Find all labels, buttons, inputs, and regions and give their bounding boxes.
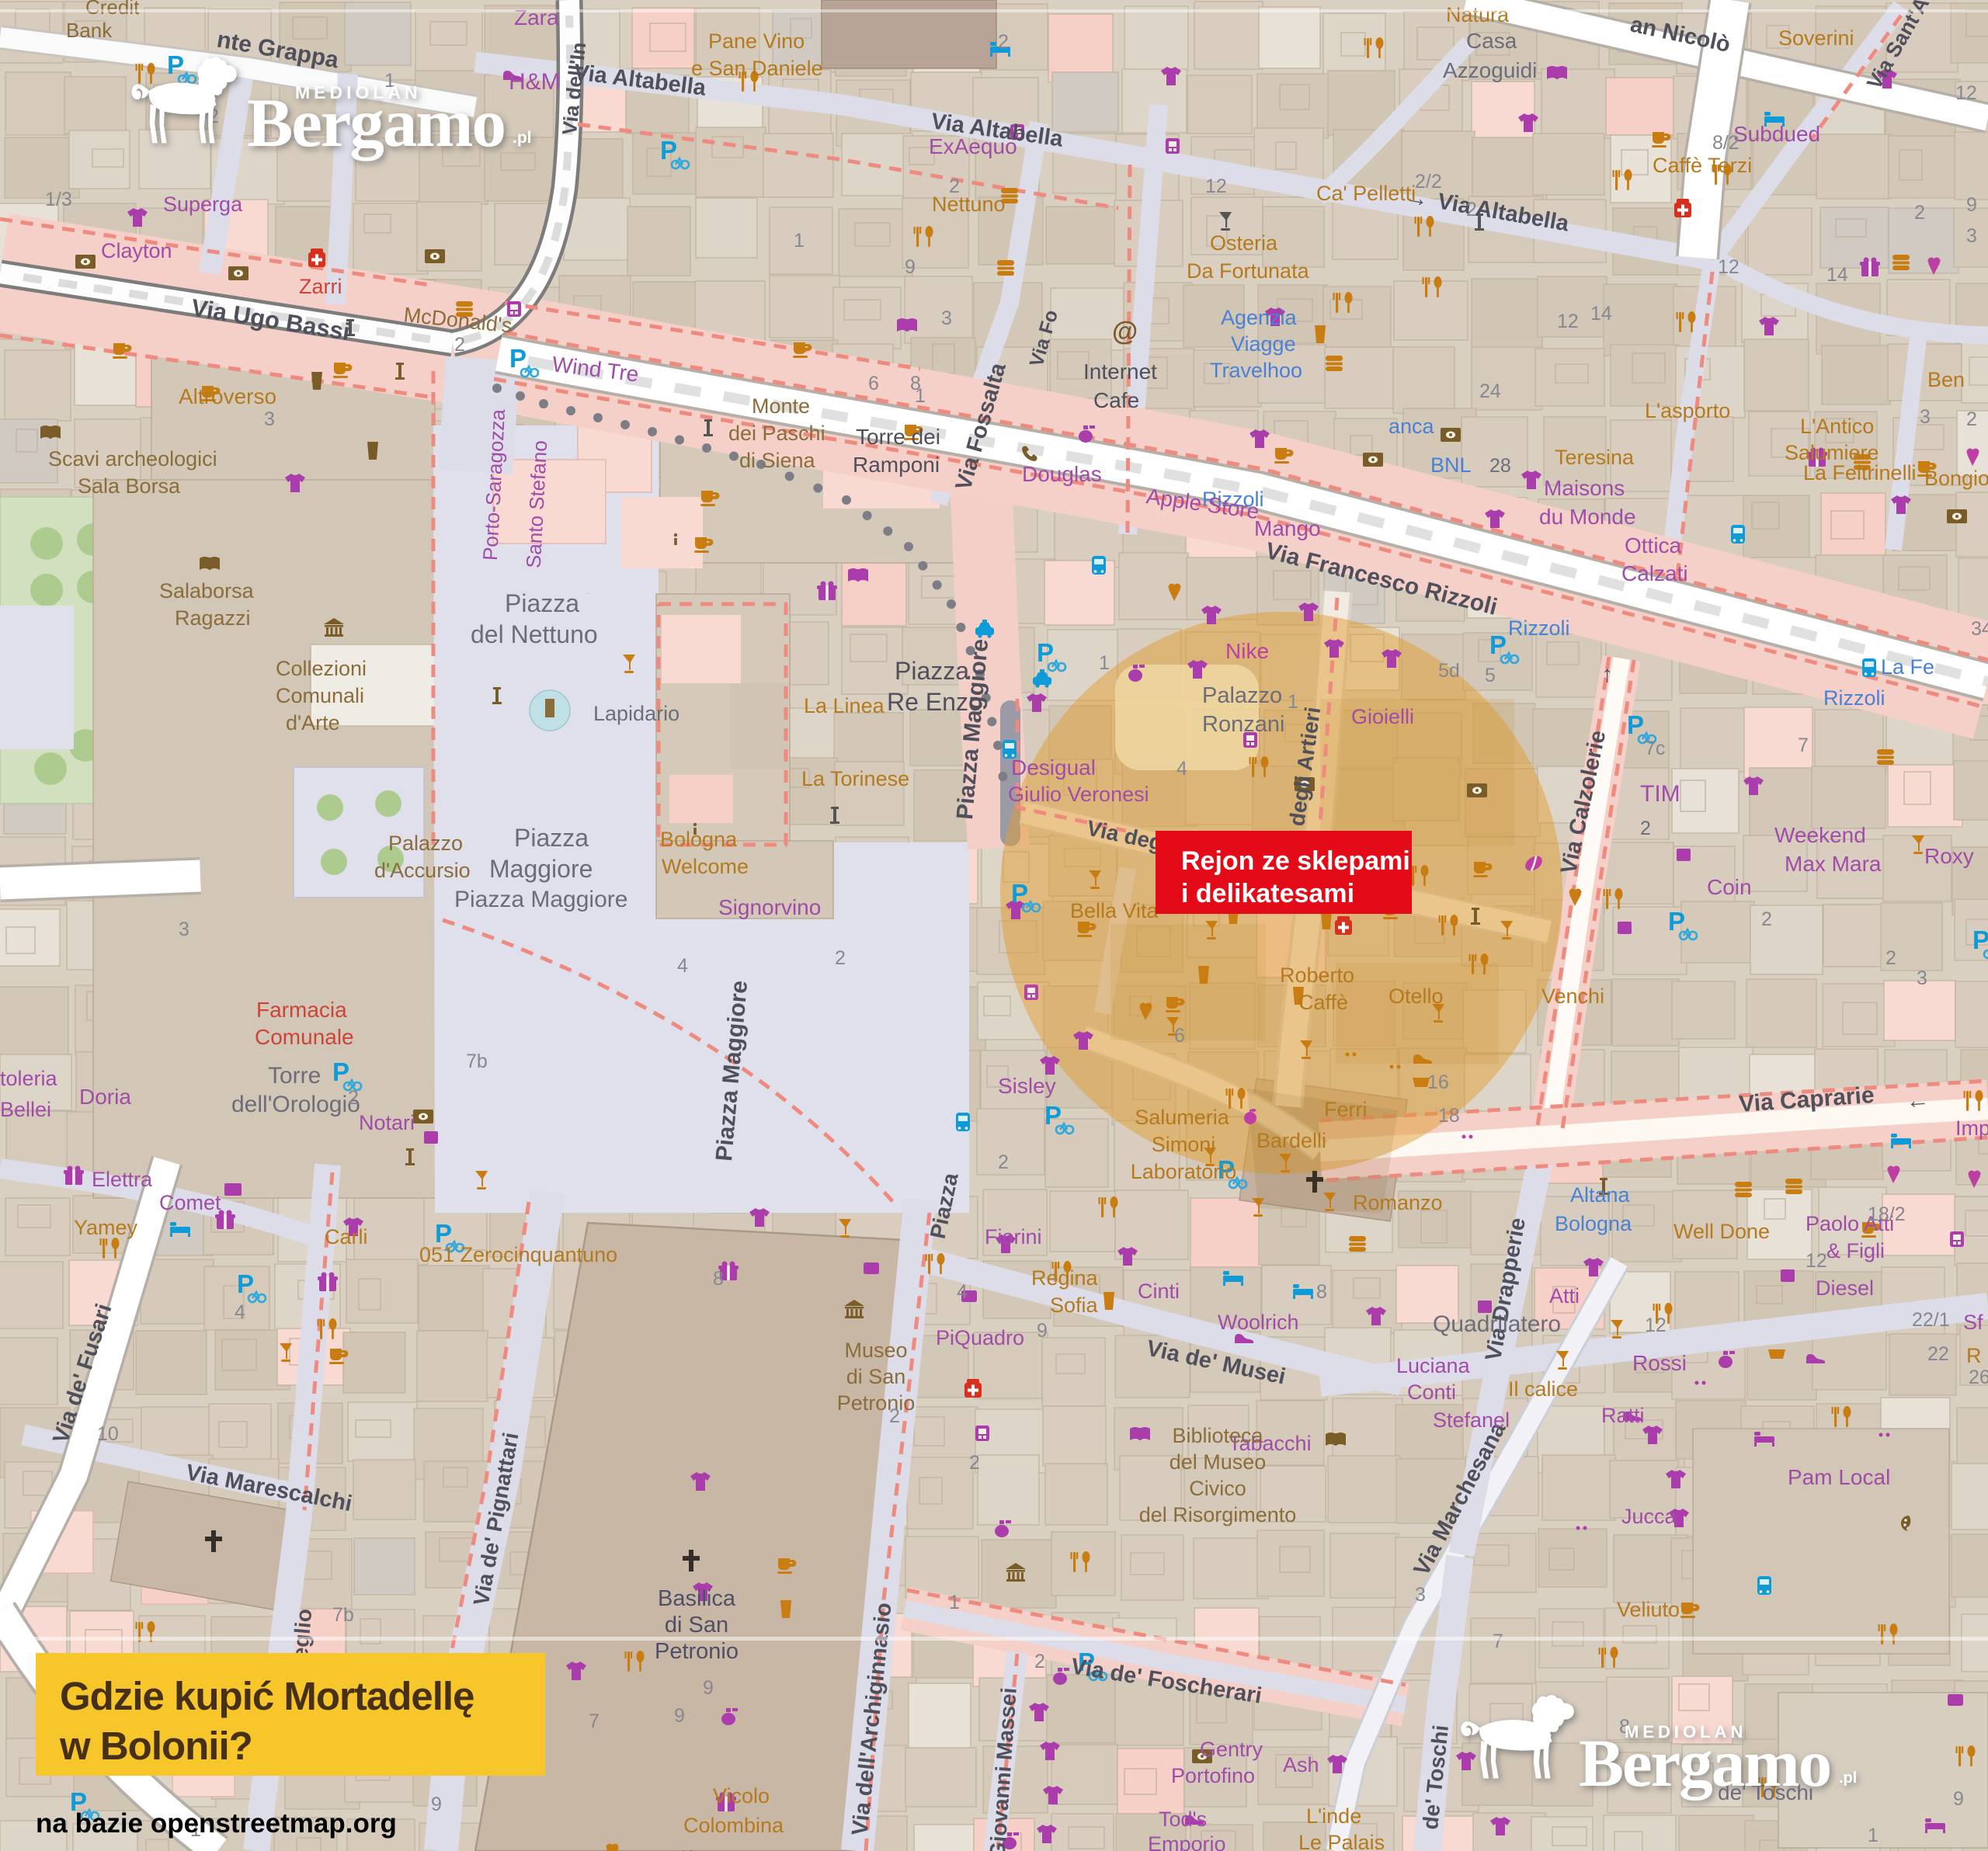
svg-text:10: 10: [97, 1423, 119, 1445]
svg-text:1: 1: [1868, 1825, 1879, 1846]
svg-text:Altana: Altana: [1570, 1183, 1631, 1207]
svg-text:Luciana: Luciana: [1396, 1354, 1471, 1377]
svg-text:3: 3: [179, 919, 189, 940]
svg-text:Cinti: Cinti: [1138, 1280, 1180, 1303]
svg-text:Osteria: Osteria: [1210, 231, 1278, 255]
svg-text:Maggiore: Maggiore: [489, 855, 593, 883]
svg-text:Internet: Internet: [1083, 359, 1157, 384]
svg-text:Mango: Mango: [1254, 516, 1321, 540]
svg-text:Petronio: Petronio: [655, 1639, 739, 1664]
svg-text:Rossi: Rossi: [1632, 1351, 1687, 1375]
svg-text:Palazzo: Palazzo: [1202, 683, 1282, 708]
svg-text:4: 4: [677, 955, 688, 977]
svg-text:26: 26: [1969, 1367, 1988, 1388]
svg-text:Cafe: Cafe: [1093, 388, 1139, 412]
svg-text:Giulio Veronesi: Giulio Veronesi: [1008, 783, 1149, 806]
svg-text:9: 9: [431, 1794, 442, 1815]
svg-text:.pl: .pl: [513, 129, 532, 147]
svg-text:Regina: Regina: [1031, 1266, 1099, 1290]
svg-text:Teresina: Teresina: [1555, 446, 1635, 469]
svg-text:La Linea: La Linea: [804, 694, 885, 717]
svg-text:9: 9: [674, 1705, 685, 1727]
svg-text:2: 2: [454, 334, 465, 356]
svg-text:18: 18: [1438, 1105, 1460, 1127]
svg-text:& Figli: & Figli: [1826, 1239, 1885, 1262]
svg-text:4: 4: [957, 1281, 968, 1303]
svg-text:Le Palais: Le Palais: [1298, 1831, 1385, 1851]
svg-text:Sofia: Sofia: [1050, 1294, 1099, 1317]
svg-text:Gentry: Gentry: [1200, 1738, 1263, 1761]
svg-text:Comunale: Comunale: [255, 1025, 354, 1049]
svg-text:Impero: Impero: [1955, 1117, 1988, 1140]
svg-text:Fiorini: Fiorini: [985, 1225, 1042, 1248]
svg-text:28: 28: [1489, 455, 1511, 477]
svg-text:Viagge: Viagge: [1231, 332, 1296, 356]
svg-text:Clayton: Clayton: [101, 239, 172, 262]
svg-text:Da Fortunata: Da Fortunata: [1187, 259, 1310, 283]
svg-text:Nike: Nike: [1225, 639, 1269, 663]
svg-text:2: 2: [969, 1452, 980, 1474]
svg-text:12: 12: [1955, 82, 1977, 104]
svg-text:BNL: BNL: [1430, 453, 1472, 477]
svg-text:Ratti: Ratti: [1601, 1404, 1645, 1427]
svg-text:w Bolonii?: w Bolonii?: [59, 1724, 252, 1768]
svg-text:L'inde: L'inde: [1306, 1804, 1361, 1828]
svg-text:Comet: Comet: [159, 1191, 221, 1214]
svg-text:Zara: Zara: [514, 5, 559, 30]
svg-text:Agenzia: Agenzia: [1221, 306, 1298, 329]
svg-text:1: 1: [1288, 691, 1298, 713]
svg-text:8: 8: [713, 1268, 724, 1290]
svg-text:1/3: 1/3: [45, 189, 72, 210]
svg-text:Maisons: Maisons: [1544, 476, 1625, 500]
svg-text:.pl: .pl: [1839, 1769, 1857, 1787]
svg-text:Zarri: Zarri: [299, 275, 342, 298]
svg-text:Emporio: Emporio: [1148, 1832, 1226, 1851]
svg-text:Romanzo: Romanzo: [1353, 1191, 1443, 1214]
svg-text:Travelhoo: Travelhoo: [1210, 359, 1302, 382]
svg-text:Roxy: Roxy: [1924, 844, 1974, 868]
svg-text:Elettra: Elettra: [92, 1168, 153, 1191]
svg-text:4: 4: [235, 1301, 245, 1323]
svg-text:Lapidario: Lapidario: [593, 702, 679, 725]
svg-text:Quadrilatero: Quadrilatero: [1433, 1311, 1561, 1337]
svg-text:Max Mara: Max Mara: [1785, 852, 1882, 876]
svg-text:051 Zerocinquantuno: 051 Zerocinquantuno: [419, 1243, 617, 1266]
svg-text:1: 1: [1099, 652, 1110, 674]
svg-text:1: 1: [949, 1592, 960, 1613]
svg-text:2: 2: [998, 31, 1009, 53]
svg-text:Tod's: Tod's: [1159, 1808, 1207, 1831]
svg-text:Stefanel: Stefanel: [1433, 1408, 1510, 1432]
svg-text:Vicolo: Vicolo: [713, 1784, 770, 1808]
svg-text:Altroverso: Altroverso: [179, 384, 276, 408]
svg-text:Rizzoli: Rizzoli: [1508, 616, 1570, 640]
svg-text:Caffè: Caffè: [1298, 991, 1348, 1014]
svg-text:anca: anca: [1388, 415, 1435, 438]
svg-text:9: 9: [703, 1677, 714, 1699]
svg-text:Il calice: Il calice: [1508, 1377, 1578, 1401]
svg-text:2: 2: [1034, 1651, 1045, 1672]
svg-text:Torre: Torre: [268, 1063, 321, 1089]
svg-text:Petronio: Petronio: [837, 1391, 916, 1415]
svg-text:Weekend: Weekend: [1774, 823, 1866, 847]
svg-text:6: 6: [1174, 1025, 1185, 1047]
svg-text:Simoni: Simoni: [1152, 1133, 1216, 1156]
svg-text:3: 3: [1415, 1584, 1426, 1606]
svg-text:La Fe: La Fe: [1881, 655, 1934, 679]
svg-text:H&M: H&M: [509, 69, 561, 95]
svg-text:Notari: Notari: [359, 1111, 415, 1134]
svg-text:8: 8: [910, 373, 921, 394]
svg-text:Signorvino: Signorvino: [718, 895, 821, 919]
svg-text:e San Daniele: e San Daniele: [691, 57, 823, 80]
svg-text:Atti: Atti: [1549, 1284, 1580, 1308]
svg-text:Biblioteca: Biblioteca: [1172, 1424, 1263, 1447]
svg-text:7b: 7b: [332, 1604, 354, 1626]
svg-text:L'asporto: L'asporto: [1645, 399, 1730, 422]
svg-text:Ca' Pelletti: Ca' Pelletti: [1316, 182, 1416, 205]
svg-text:14: 14: [1826, 264, 1848, 286]
svg-text:8: 8: [1316, 1281, 1327, 1303]
svg-text:Pane Vino: Pane Vino: [708, 30, 805, 53]
svg-text:Sf: Sf: [1963, 1311, 1983, 1334]
svg-text:Otello: Otello: [1388, 985, 1444, 1008]
svg-text:Salumeria: Salumeria: [1135, 1106, 1230, 1129]
svg-text:Azzoguidi: Azzoguidi: [1443, 58, 1537, 82]
svg-text:6: 6: [868, 373, 879, 394]
svg-text:2: 2: [949, 175, 960, 197]
svg-text:2: 2: [835, 947, 846, 969]
svg-text:Ragazzi: Ragazzi: [175, 606, 251, 630]
svg-text:R: R: [1966, 1344, 1982, 1367]
svg-text:Welcome: Welcome: [662, 855, 749, 878]
svg-text:Gioielli: Gioielli: [1351, 705, 1414, 728]
svg-text:Lapidario: Lapidario: [586, 593, 590, 595]
svg-text:Sala Borsa: Sala Borsa: [78, 474, 181, 498]
svg-text:Soverini: Soverini: [1778, 26, 1854, 50]
svg-text:di San: di San: [846, 1365, 906, 1388]
svg-text:↑: ↑: [1601, 662, 1613, 687]
svg-text:3: 3: [1920, 406, 1931, 428]
svg-text:PiQuadro: PiQuadro: [936, 1326, 1024, 1349]
svg-text:Bella Vita: Bella Vita: [1070, 899, 1159, 922]
svg-text:Sisley: Sisley: [998, 1074, 1056, 1098]
svg-text:Scavi archeologici: Scavi archeologici: [48, 447, 217, 471]
svg-text:Bardelli: Bardelli: [1256, 1129, 1326, 1152]
svg-text:Basilica: Basilica: [658, 1586, 736, 1611]
svg-text:Bellei: Bellei: [0, 1098, 51, 1121]
svg-text:12: 12: [1557, 311, 1579, 332]
svg-text:P: P: [1972, 925, 1988, 954]
svg-text:2: 2: [998, 1151, 1009, 1173]
svg-text:Superga: Superga: [163, 193, 243, 216]
svg-text:del Museo: del Museo: [1170, 1450, 1267, 1474]
svg-text:Piazza Maggiore: Piazza Maggiore: [454, 887, 627, 912]
svg-text:del Risorgimento: del Risorgimento: [1139, 1503, 1297, 1526]
svg-text:Caffè Terzi: Caffè Terzi: [1653, 154, 1752, 177]
svg-text:3: 3: [1917, 967, 1927, 989]
svg-text:La Torinese: La Torinese: [801, 767, 909, 790]
svg-text:Veliuto: Veliuto: [1617, 1598, 1680, 1621]
svg-text:12: 12: [1718, 256, 1739, 278]
svg-text:Ben: Ben: [1927, 368, 1965, 391]
svg-text:Torre dei: Torre dei: [856, 425, 940, 449]
svg-text:Collezioni: Collezioni: [276, 657, 367, 680]
svg-text:34: 34: [1971, 618, 1988, 640]
svg-text:Colombina: Colombina: [683, 1814, 784, 1837]
svg-text:22: 22: [1927, 1343, 1949, 1365]
svg-text:12: 12: [1645, 1314, 1667, 1336]
svg-text:Rizzoli: Rizzoli: [1823, 686, 1885, 710]
svg-text:Coin: Coin: [1707, 875, 1752, 899]
svg-text:di San: di San: [665, 1613, 728, 1637]
svg-text:i delikatesami: i delikatesami: [1181, 879, 1354, 908]
svg-text:7c: 7c: [1645, 738, 1665, 759]
svg-text:5: 5: [1485, 665, 1496, 686]
svg-text:Civico: Civico: [1189, 1477, 1246, 1500]
svg-text:2: 2: [1640, 818, 1651, 839]
svg-text:Portofino: Portofino: [1171, 1764, 1255, 1787]
svg-text:Piazza: Piazza: [505, 589, 579, 617]
svg-text:Palazzo: Palazzo: [388, 832, 463, 855]
svg-text:Comunali: Comunali: [276, 684, 364, 707]
svg-text:Museo: Museo: [844, 1339, 907, 1362]
svg-text:d'Accursio: d'Accursio: [374, 859, 471, 882]
svg-text:4: 4: [1176, 758, 1187, 780]
svg-text:Calzati: Calzati: [1621, 561, 1688, 585]
svg-text:Gdzie kupić Mortadellę: Gdzie kupić Mortadellę: [60, 1674, 474, 1718]
svg-text:Piazza: Piazza: [514, 824, 589, 852]
svg-text:ExAequo: ExAequo: [929, 134, 1017, 158]
svg-text:Desigual: Desigual: [1011, 755, 1096, 780]
svg-text:Bologna: Bologna: [660, 828, 738, 851]
svg-text:3: 3: [941, 307, 952, 329]
svg-text:Bologna: Bologna: [1555, 1212, 1632, 1235]
svg-text:Farmacia: Farmacia: [256, 998, 347, 1022]
svg-text:12: 12: [1806, 1250, 1827, 1272]
svg-text:24: 24: [1479, 380, 1501, 402]
svg-text:Doria: Doria: [79, 1085, 131, 1109]
svg-text:Diesel: Diesel: [1816, 1276, 1874, 1300]
svg-text:Bongiov: Bongiov: [1924, 467, 1988, 490]
svg-text:Bergamo: Bergamo: [1579, 1725, 1830, 1801]
svg-text:d'Arte: d'Arte: [286, 711, 340, 734]
svg-text:Salaborsa: Salaborsa: [159, 579, 255, 603]
svg-text:L'Antico: L'Antico: [1800, 415, 1874, 438]
svg-text:Piazza: Piazza: [895, 657, 969, 685]
svg-text:toleria: toleria: [0, 1067, 58, 1090]
svg-text:16: 16: [1427, 1071, 1449, 1093]
svg-text:Ash: Ash: [1283, 1753, 1319, 1776]
svg-text:Douglas: Douglas: [1022, 462, 1102, 486]
svg-text:3: 3: [1966, 225, 1977, 247]
svg-text:7: 7: [1493, 1630, 1503, 1652]
svg-text:12: 12: [1205, 175, 1227, 197]
svg-text:del Nettuno: del Nettuno: [471, 620, 598, 648]
svg-text:9: 9: [1953, 1788, 1964, 1810]
svg-text:Well Done: Well Done: [1673, 1220, 1770, 1243]
svg-text:dell'Orologio: dell'Orologio: [231, 1092, 360, 1117]
svg-text:5d: 5d: [1438, 660, 1460, 682]
svg-text:dei Paschi: dei Paschi: [728, 422, 825, 445]
svg-text:Ronzani: Ronzani: [1202, 712, 1284, 737]
svg-text:Ottica: Ottica: [1625, 533, 1682, 557]
svg-text:Natura: Natura: [1446, 3, 1510, 26]
svg-text:Rejon ze sklepami: Rejon ze sklepami: [1181, 846, 1410, 876]
svg-text:8/2: 8/2: [1712, 132, 1739, 154]
svg-text:←: ←: [1905, 1087, 1930, 1114]
svg-text:9: 9: [1037, 1320, 1048, 1342]
svg-text:Subdued: Subdued: [1733, 122, 1820, 146]
svg-text:Ramponi: Ramponi: [853, 453, 940, 477]
svg-text:Bank: Bank: [66, 19, 113, 42]
svg-text:Jucca: Jucca: [1621, 1505, 1677, 1528]
svg-text:9: 9: [905, 256, 916, 278]
svg-text:na bazie openstreetmap.org: na bazie openstreetmap.org: [36, 1808, 397, 1839]
svg-text:Pam Local: Pam Local: [1788, 1465, 1890, 1489]
svg-text:Monte: Monte: [752, 394, 810, 418]
svg-text:Roberto: Roberto: [1280, 964, 1354, 987]
svg-text:TIM: TIM: [1640, 781, 1680, 807]
svg-text:9: 9: [1966, 194, 1977, 216]
svg-text:Casa: Casa: [1466, 29, 1517, 53]
svg-text:Woolrich: Woolrich: [1218, 1311, 1299, 1334]
svg-text:2/2: 2/2: [1415, 171, 1442, 193]
svg-text:Yamey: Yamey: [74, 1216, 138, 1239]
svg-text:2: 2: [889, 1405, 900, 1427]
svg-text:Venchi: Venchi: [1541, 985, 1604, 1008]
svg-text:2: 2: [1466, 199, 1477, 221]
svg-text:2: 2: [1966, 408, 1977, 430]
svg-text:2: 2: [1761, 908, 1772, 930]
svg-text:Ferri: Ferri: [1324, 1098, 1368, 1121]
svg-text:2: 2: [1914, 202, 1925, 224]
svg-text:@: @: [1112, 317, 1138, 346]
svg-text:du Monde: du Monde: [1539, 505, 1636, 529]
svg-text:14: 14: [1590, 303, 1612, 325]
svg-text:2: 2: [348, 1087, 359, 1109]
svg-text:22/1: 22/1: [1912, 1309, 1950, 1331]
svg-text:Conti: Conti: [1407, 1380, 1456, 1404]
svg-text:di Siena: di Siena: [739, 449, 816, 472]
svg-text:7: 7: [589, 1710, 600, 1732]
svg-text:Carli: Carli: [325, 1225, 368, 1248]
svg-text:1: 1: [794, 230, 805, 252]
svg-text:Nettuno: Nettuno: [932, 193, 1006, 216]
svg-text:2: 2: [1885, 947, 1896, 969]
svg-text:18/2: 18/2: [1868, 1203, 1906, 1225]
svg-text:Bergamo: Bergamo: [247, 85, 505, 161]
svg-text:7b: 7b: [466, 1051, 488, 1072]
svg-text:7: 7: [1798, 734, 1809, 756]
svg-text:3: 3: [264, 408, 275, 430]
svg-text:La Feltrinelli: La Feltrinelli: [1803, 461, 1917, 484]
svg-text:Laboratorio: Laboratorio: [1131, 1160, 1237, 1183]
